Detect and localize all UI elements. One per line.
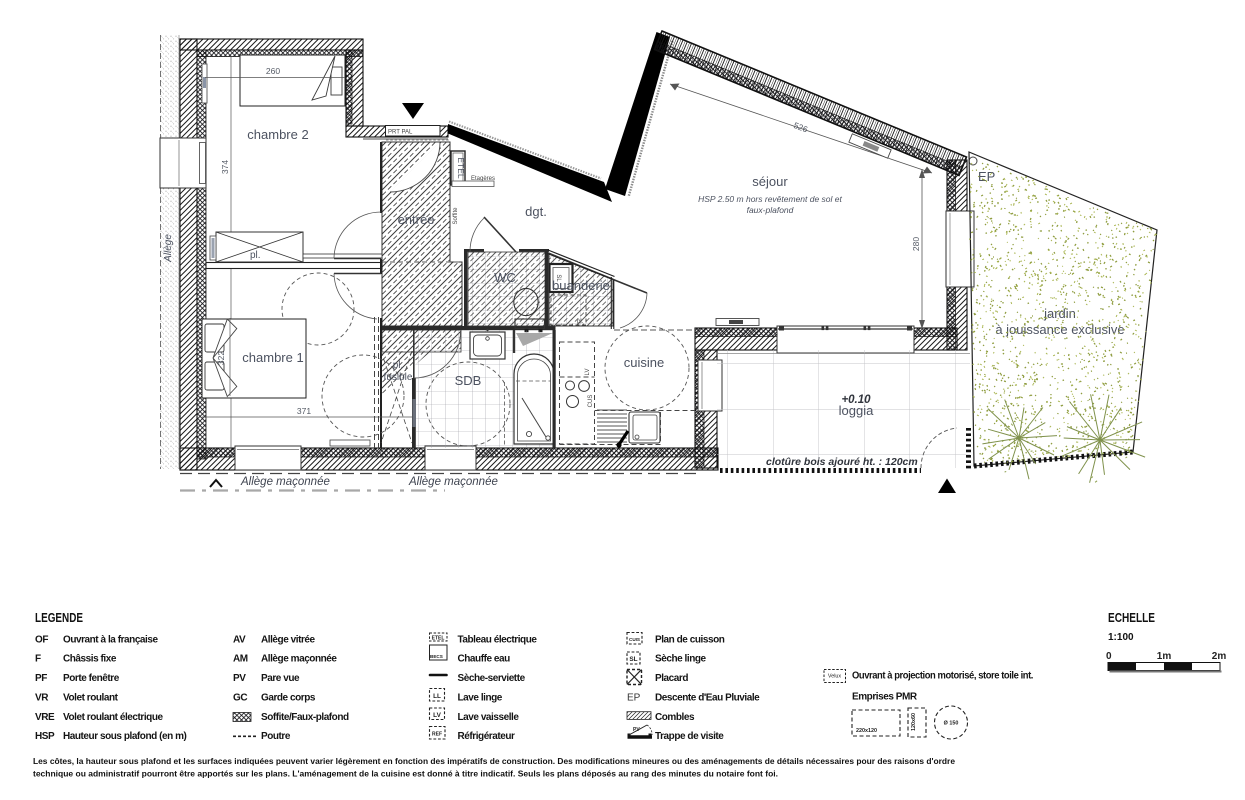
svg-text:BECS: BECS [430, 654, 443, 659]
svg-text:ETEL: ETEL [432, 636, 445, 642]
svg-text:F: F [35, 654, 41, 665]
svg-text:faux-plafond: faux-plafond [747, 205, 794, 215]
svg-text:SL: SL [629, 656, 637, 663]
svg-text:cuisine: cuisine [624, 355, 664, 370]
svg-text:séjour: séjour [752, 174, 788, 189]
svg-text:Châssis fixe: Châssis fixe [63, 654, 117, 665]
svg-text:1m: 1m [1157, 651, 1172, 662]
svg-text:EP: EP [627, 692, 641, 703]
svg-text:à jouissance exclusive: à jouissance exclusive [995, 322, 1124, 337]
svg-text:loggia: loggia [839, 403, 874, 418]
svg-text:LL: LL [433, 693, 441, 700]
svg-text:Allège maçonnée: Allège maçonnée [408, 476, 498, 488]
svg-text:WC: WC [494, 270, 516, 285]
svg-text:Garde corps: Garde corps [261, 692, 316, 703]
svg-text:Volet roulant électrique: Volet roulant électrique [63, 712, 163, 723]
svg-text:Plan de cuisson: Plan de cuisson [655, 634, 725, 645]
svg-text:Velux: Velux [828, 674, 841, 680]
svg-text:PV: PV [633, 727, 640, 733]
svg-text:260: 260 [266, 66, 280, 76]
svg-text:Allège maçonnée: Allège maçonnée [261, 654, 337, 665]
svg-text:clotûre bois ajouré ht. : 120c: clotûre bois ajouré ht. : 120cm [766, 456, 918, 468]
svg-text:Hauteur sous plafond (en m): Hauteur sous plafond (en m) [63, 731, 187, 742]
svg-text:pl.: pl. [393, 360, 404, 371]
svg-text:GC: GC [233, 692, 247, 703]
svg-text:OF: OF [35, 634, 48, 645]
svg-text:Réfrigérateur: Réfrigérateur [458, 731, 516, 742]
svg-text:Les côtes, la hauteur sous pla: Les côtes, la hauteur sous plafond et le… [33, 757, 955, 766]
svg-text:jardin: jardin [1043, 306, 1076, 321]
svg-text:Soffite: Soffite [453, 207, 459, 225]
svg-text:ETEL: ETEL [456, 157, 466, 179]
svg-text:AV: AV [233, 634, 246, 645]
svg-text:pl.: pl. [250, 250, 261, 261]
svg-text:Soffite/Faux-plafond: Soffite/Faux-plafond [261, 712, 349, 723]
svg-text:Sèche-serviette: Sèche-serviette [458, 673, 526, 684]
svg-text:Volet roulant: Volet roulant [63, 692, 119, 703]
svg-text:Ouvrant à la française: Ouvrant à la française [63, 634, 158, 645]
svg-text:Sèche linge: Sèche linge [655, 654, 707, 665]
svg-text:fusible: fusible [384, 372, 413, 383]
svg-text:Combles: Combles [655, 712, 695, 723]
svg-text:374: 374 [220, 160, 230, 174]
svg-text:CUIS: CUIS [629, 637, 640, 642]
svg-text:Allège maçonnée: Allège maçonnée [240, 476, 330, 488]
svg-text:Allège: Allège [163, 234, 174, 263]
svg-text:Etagères: Etagères [471, 176, 495, 182]
svg-text:220x120: 220x120 [856, 728, 877, 734]
svg-text:ECHELLE: ECHELLE [1108, 610, 1155, 625]
svg-text:LV: LV [585, 369, 591, 376]
svg-text:VR: VR [35, 692, 49, 703]
svg-text:AM: AM [233, 654, 248, 665]
svg-text:0: 0 [1106, 651, 1112, 662]
svg-text:Chauffe eau: Chauffe eau [458, 654, 511, 665]
svg-text:VRE: VRE [35, 712, 55, 723]
svg-text:Ø 150: Ø 150 [944, 721, 959, 727]
svg-text:2m: 2m [1212, 651, 1227, 662]
svg-text:SDB: SDB [455, 373, 482, 388]
svg-text:Placard: Placard [655, 673, 688, 684]
svg-text:chambre 1: chambre 1 [242, 350, 303, 365]
svg-text:REF: REF [432, 732, 442, 738]
svg-text:PRT PAL: PRT PAL [388, 130, 413, 136]
svg-text:Pare vue: Pare vue [261, 673, 300, 684]
svg-text:technique ou administratif pou: technique ou administratif pourront être… [33, 770, 778, 779]
svg-text:Tableau électrique: Tableau électrique [458, 634, 538, 645]
svg-text:280: 280 [911, 237, 921, 251]
svg-text:LV: LV [433, 712, 441, 719]
svg-text:Lave linge: Lave linge [458, 692, 503, 703]
svg-text:entrée: entrée [398, 212, 435, 227]
svg-text:322: 322 [216, 351, 226, 365]
svg-text:1:100: 1:100 [1108, 632, 1134, 643]
svg-text:pl.: pl. [577, 319, 584, 325]
svg-text:dgt.: dgt. [525, 204, 547, 219]
svg-text:HSP: HSP [35, 731, 55, 742]
svg-text:LEGENDE: LEGENDE [35, 610, 83, 625]
svg-text:PF: PF [35, 673, 47, 684]
svg-text:371: 371 [297, 406, 311, 416]
svg-text:Ouvrant à projection motorisé,: Ouvrant à projection motorisé, store toi… [852, 671, 1034, 682]
svg-text:120x60: 120x60 [911, 713, 917, 731]
svg-text:Lave vaisselle: Lave vaisselle [458, 712, 520, 723]
svg-text:Trappe de visite: Trappe de visite [655, 731, 724, 742]
svg-text:Emprises PMR: Emprises PMR [852, 692, 918, 703]
svg-text:PV: PV [233, 673, 246, 684]
svg-text:Descente d'Eau Pluviale: Descente d'Eau Pluviale [655, 692, 760, 703]
svg-text:CUS: CUS [588, 395, 594, 408]
svg-text:buanderie: buanderie [552, 278, 610, 293]
svg-text:chambre 2: chambre 2 [247, 127, 308, 142]
svg-text:HSP 2.50 m hors revêtement de: HSP 2.50 m hors revêtement de sol et [698, 194, 842, 204]
svg-text:Porte fenêtre: Porte fenêtre [63, 673, 120, 684]
svg-text:Poutre: Poutre [261, 731, 291, 742]
svg-text:Allège vitrée: Allège vitrée [261, 634, 316, 645]
